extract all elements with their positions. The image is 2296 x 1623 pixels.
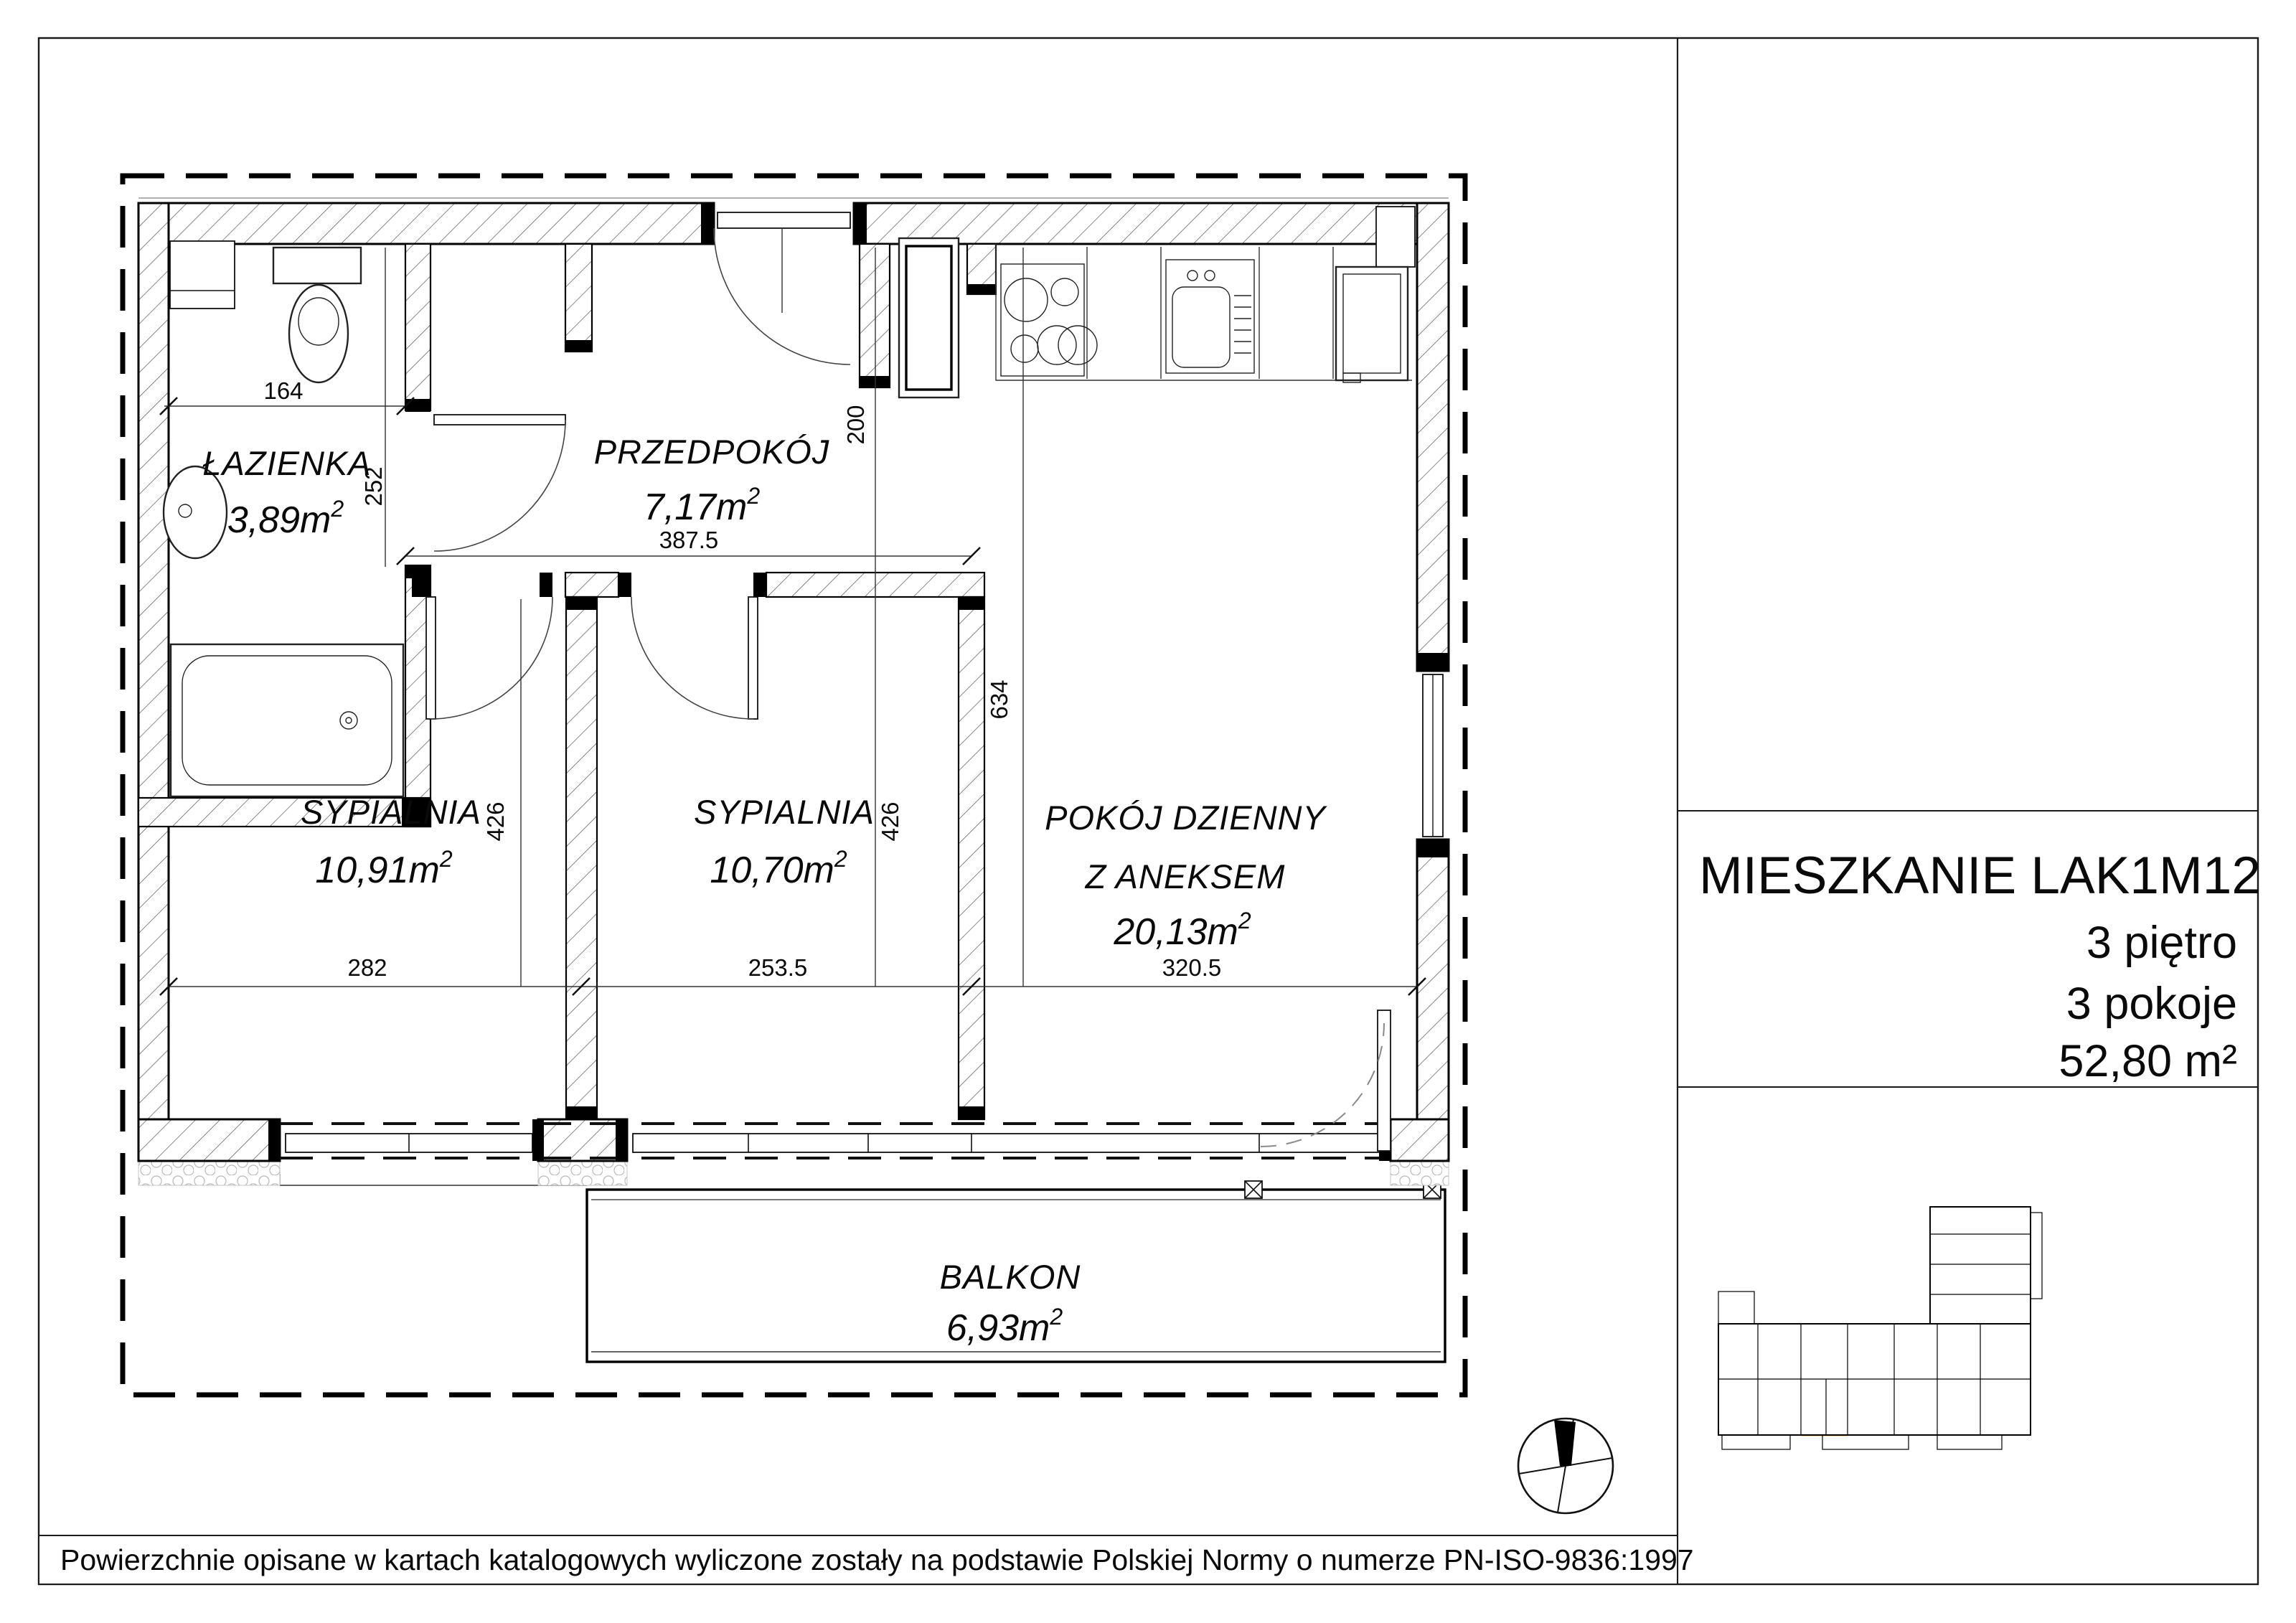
- north-compass-icon: [1518, 1419, 1613, 1513]
- apartment-info-panel: MIESZKANIE LAK1M12 3 piętro 3 pokoje 52,…: [1678, 811, 2261, 1087]
- dim-hall-width: 387.5: [659, 527, 719, 553]
- dim-bath-width: 164: [263, 377, 303, 404]
- building-key-plan: [1718, 1207, 2042, 1449]
- room-area-balcony: 6,93m2: [946, 1304, 1063, 1349]
- room-label-bedroom2: SYPIALNIA: [694, 793, 875, 831]
- sink-icon: [1166, 260, 1254, 373]
- apartment-title: MIESZKANIE LAK1M12: [1699, 847, 2261, 905]
- window-band-bedroom2-living: [633, 1134, 1385, 1152]
- dim-bedroom2-width: 253.5: [748, 954, 808, 981]
- room-label-living-2: Z ANEKSEM: [1085, 857, 1286, 895]
- disclaimer-bar: Powierzchnie opisane w kartach katalogow…: [39, 1535, 1694, 1584]
- floorplan-drawing: 164 252 387.5 200 634 426 426 282 253.5 …: [0, 0, 2296, 1623]
- window-bedroom1: [286, 1134, 532, 1152]
- room-area-bedroom2: 10,70m2: [710, 846, 847, 891]
- room-label-balcony: BALKON: [940, 1258, 1081, 1296]
- balcony-outline: [280, 1174, 1445, 1362]
- wardrobe-icon: [899, 238, 959, 397]
- dim-bedroom2-height: 426: [877, 801, 903, 841]
- room-label-bedroom1: SYPIALNIA: [301, 793, 481, 831]
- dim-living-width: 320.5: [1162, 954, 1222, 981]
- balcony-fixing-mark: [1245, 1181, 1262, 1198]
- bedroom2-door: [631, 597, 758, 719]
- bedroom1-door: [426, 597, 552, 719]
- dim-living-height: 634: [986, 679, 1012, 719]
- floorplan-card-page: 164 252 387.5 200 634 426 426 282 253.5 …: [0, 0, 2296, 1623]
- room-label-living: POKÓJ DZIENNY: [1045, 799, 1327, 837]
- room-area-hall: 7,17m2: [644, 483, 761, 528]
- dim-bedroom1-width: 282: [347, 954, 387, 981]
- apartment-floor: 3 piętro: [2086, 918, 2237, 968]
- facade-windows: [268, 653, 1449, 1161]
- room-label-bathroom: ŁAZIENKA: [202, 444, 371, 482]
- disclaimer-text: Powierzchnie opisane w kartach katalogow…: [60, 1543, 1694, 1576]
- toilet-icon: [273, 248, 361, 382]
- room-label-hall: PRZEDPOKÓJ: [594, 433, 830, 471]
- room-area-bathroom: 3,89m2: [227, 496, 344, 541]
- dim-bedroom1-height: 426: [482, 801, 509, 841]
- apartment-rooms: 3 pokoje: [2066, 979, 2237, 1029]
- dim-hall-height: 200: [842, 405, 869, 444]
- entrance-door: [714, 212, 850, 364]
- apartment-area: 52,80 m²: [2059, 1036, 2237, 1086]
- kitchen-annex: [996, 244, 1412, 382]
- room-area-living: 20,13m2: [1113, 908, 1251, 953]
- fridge-icon: [1336, 267, 1408, 382]
- window-right-wall: [1417, 653, 1449, 857]
- balcony-door: [1261, 1010, 1391, 1151]
- stove-icon: [1001, 264, 1097, 376]
- bathtub-icon: [171, 644, 403, 796]
- bathroom-door: [434, 415, 565, 551]
- room-area-bedroom1: 10,91m2: [315, 846, 452, 891]
